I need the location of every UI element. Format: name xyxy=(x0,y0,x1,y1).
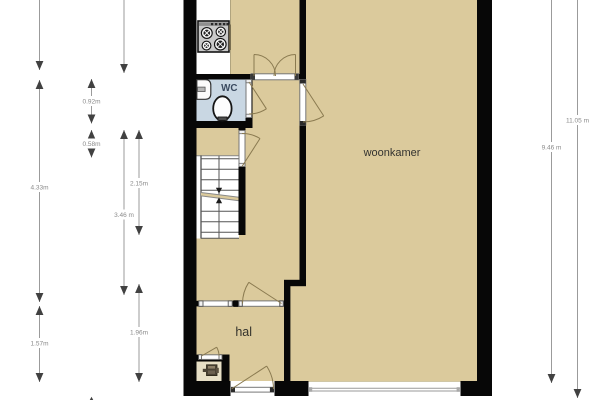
svg-text:9.46 m: 9.46 m xyxy=(542,145,562,152)
svg-text:2.15m: 2.15m xyxy=(130,181,148,188)
svg-text:11.05 m: 11.05 m xyxy=(566,118,589,125)
svg-text:1.96m: 1.96m xyxy=(130,330,148,337)
svg-text:WC: WC xyxy=(221,83,237,94)
svg-text:0.58m: 0.58m xyxy=(82,141,100,148)
svg-text:4.33m: 4.33m xyxy=(30,185,48,192)
svg-text:woonkamer: woonkamer xyxy=(363,147,421,159)
svg-text:1.57m: 1.57m xyxy=(30,341,48,348)
svg-text:hal: hal xyxy=(235,325,252,339)
svg-text:0.92m: 0.92m xyxy=(82,99,100,106)
svg-text:3.46 m: 3.46 m xyxy=(114,212,134,219)
